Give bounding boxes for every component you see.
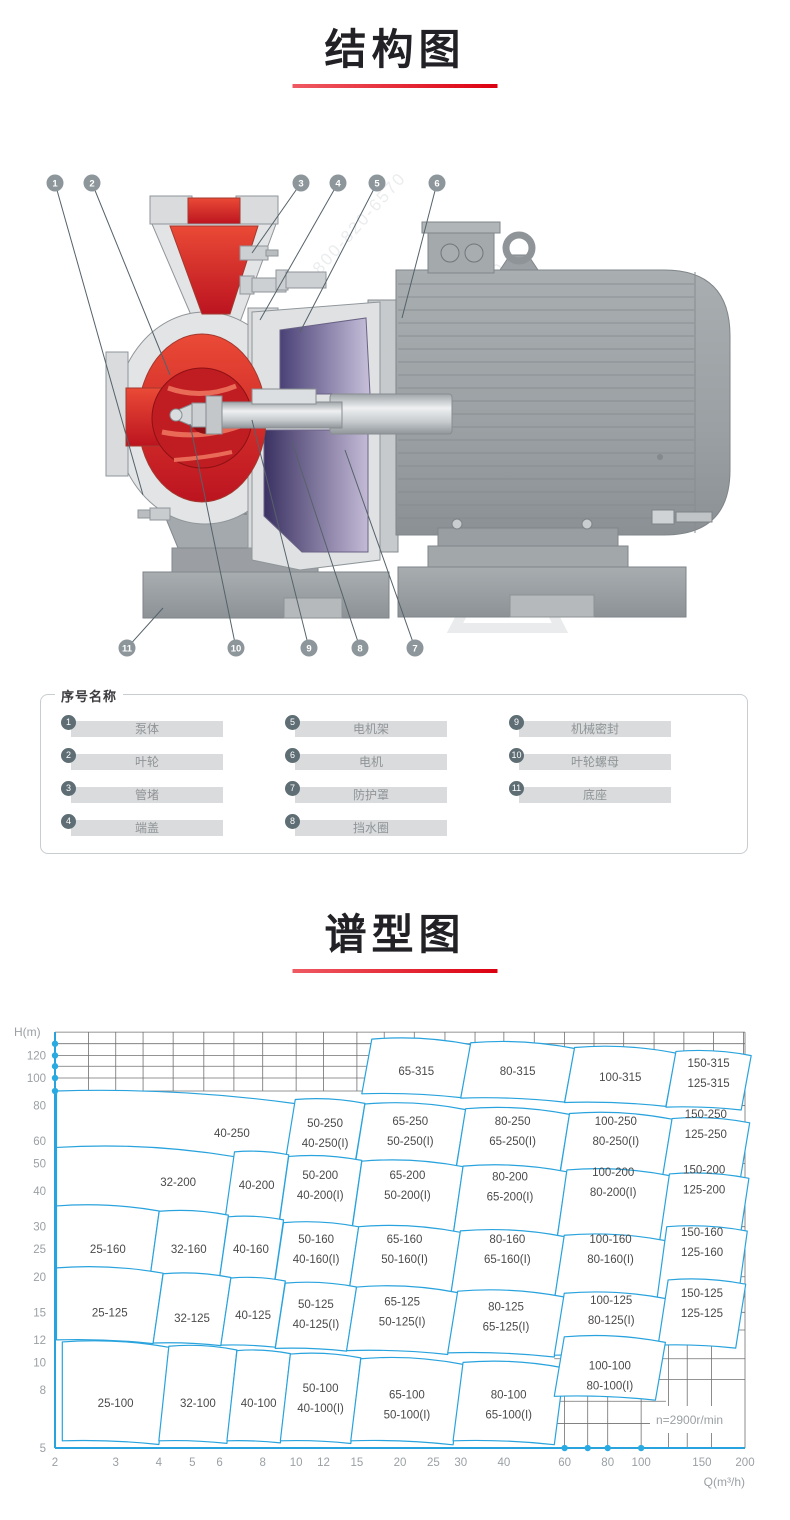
svg-text:80-160(I): 80-160(I) [587,1254,634,1266]
svg-text:80-250(I): 80-250(I) [592,1136,639,1148]
svg-text:40: 40 [497,1457,510,1469]
model-region [159,1345,237,1443]
svg-text:3: 3 [113,1457,119,1469]
shaft [170,389,452,434]
pump-structure-diagram: 800-820-6570800-820-6570800-820-6570800-… [0,160,790,680]
svg-text:50-100(I): 50-100(I) [384,1410,431,1422]
legend-item-number: 7 [285,781,300,796]
legend-item-number: 1 [61,715,76,730]
model-region [557,1169,670,1244]
y-axis-label: H(m) [14,1025,41,1039]
svg-text:200: 200 [735,1457,754,1469]
legend-item: 11底座 [509,781,733,814]
svg-text:65-100: 65-100 [389,1390,425,1402]
legend-item-label: 机械密封 [519,721,671,737]
svg-text:100-125: 100-125 [590,1295,632,1307]
title-underline [293,969,498,973]
svg-text:25: 25 [427,1457,440,1469]
svg-text:65-200: 65-200 [390,1170,426,1182]
legend-item: 1泵体 [61,715,285,748]
svg-text:50-125: 50-125 [298,1299,334,1311]
svg-text:40-250(I): 40-250(I) [302,1138,349,1150]
svg-text:100-250: 100-250 [595,1116,637,1128]
svg-text:40-160: 40-160 [233,1244,269,1256]
svg-text:50-160: 50-160 [298,1234,334,1246]
legend-item: 9机械密封 [509,715,733,748]
pump-selection-chart: 65-31580-315100-315150-315125-31540-2505… [0,1020,790,1520]
svg-text:12: 12 [33,1335,46,1347]
svg-text:50-100: 50-100 [303,1383,339,1395]
legend-item: 7防护罩 [285,781,509,814]
legend-item: 10叶轮螺母 [509,748,733,781]
svg-text:100-315: 100-315 [599,1072,641,1084]
drain-plug [150,508,170,520]
svg-text:65-125: 65-125 [384,1296,420,1308]
svg-text:15: 15 [33,1307,46,1319]
svg-text:8: 8 [40,1385,46,1397]
svg-text:4: 4 [156,1457,163,1469]
svg-text:80: 80 [601,1457,614,1469]
legend-title: 序号名称 [55,686,123,705]
watermark-text: 800-820-6570 [309,168,410,277]
svg-text:65-250(I): 65-250(I) [489,1136,536,1148]
svg-text:120: 120 [27,1050,46,1062]
svg-text:50-250: 50-250 [307,1118,343,1130]
svg-text:60: 60 [558,1457,571,1469]
callout-number: 1 [52,178,58,189]
svg-text:150-125: 150-125 [681,1288,723,1300]
callout-number: 8 [357,643,362,654]
svg-text:65-250: 65-250 [392,1116,428,1128]
svg-text:30: 30 [454,1457,467,1469]
callout-number: 3 [298,178,303,189]
svg-text:150: 150 [692,1457,711,1469]
speed-note: n=2900r/min [656,1413,723,1427]
callout-number: 4 [335,178,341,189]
svg-text:20: 20 [33,1272,46,1284]
svg-text:100: 100 [27,1073,46,1085]
callout-number: 2 [89,178,94,189]
foot-bolt [452,519,462,529]
svg-text:8: 8 [260,1457,266,1469]
svg-text:125-200: 125-200 [683,1184,725,1196]
callout-number: 9 [306,643,311,654]
legend-item: 6电机 [285,748,509,781]
terminal-box-hole [465,244,483,262]
title-underline [293,84,498,88]
legend-item-label: 泵体 [71,721,223,737]
legend-item: 4端盖 [61,814,285,847]
callout-number: 11 [122,643,133,654]
svg-text:40-125(I): 40-125(I) [293,1319,340,1331]
page-title-structure: 结构图 [0,16,790,77]
svg-text:50-200: 50-200 [302,1170,338,1182]
svg-text:100: 100 [632,1457,651,1469]
svg-text:80-100: 80-100 [491,1390,527,1402]
legend-item-label: 叶轮螺母 [519,754,671,770]
impeller-nut [192,403,206,427]
model-region [453,1361,564,1445]
legend-item-label: 管堵 [71,787,223,803]
svg-text:65-100(I): 65-100(I) [485,1410,532,1422]
callout-number: 5 [374,178,380,189]
model-region [56,1267,163,1344]
svg-text:5: 5 [40,1443,46,1455]
svg-text:50: 50 [33,1159,46,1171]
legend-item-number: 5 [285,715,300,730]
svg-text:100-160: 100-160 [589,1234,631,1246]
motor-bracket [252,302,380,570]
svg-text:25-100: 25-100 [98,1398,134,1410]
svg-text:10: 10 [33,1357,46,1369]
model-region [285,1099,365,1164]
svg-text:40-100(I): 40-100(I) [297,1403,344,1415]
model-region [280,1353,360,1443]
svg-text:80-125: 80-125 [488,1302,524,1314]
legend-item-number: 2 [61,748,76,763]
svg-text:32-125: 32-125 [174,1313,210,1325]
svg-text:80-125(I): 80-125(I) [588,1315,635,1327]
svg-text:40-100: 40-100 [241,1398,277,1410]
svg-text:65-315: 65-315 [398,1066,434,1078]
svg-text:25-125: 25-125 [92,1307,128,1319]
svg-text:40: 40 [33,1186,46,1198]
shaft-key [252,389,316,404]
callout-number: 10 [231,643,242,654]
legend-item: 5电机架 [285,715,509,748]
svg-text:50-160(I): 50-160(I) [381,1254,428,1266]
svg-text:32-100: 32-100 [180,1398,216,1410]
svg-text:50-250(I): 50-250(I) [387,1136,434,1148]
svg-text:80-315: 80-315 [500,1066,536,1078]
svg-text:150-200: 150-200 [683,1164,725,1176]
svg-text:40-125: 40-125 [235,1310,271,1322]
svg-text:15: 15 [350,1457,363,1469]
svg-text:100-100: 100-100 [589,1360,631,1372]
suction-flange [106,352,128,476]
svg-text:125-125: 125-125 [681,1308,723,1320]
svg-text:40-250: 40-250 [214,1128,250,1140]
model-region [275,1282,356,1351]
svg-text:80-200: 80-200 [492,1172,528,1184]
svg-text:12: 12 [317,1457,330,1469]
legend-item-label: 端盖 [71,820,223,836]
legend-item: 8挡水圈 [285,814,509,847]
svg-text:10: 10 [290,1457,303,1469]
svg-text:40-160(I): 40-160(I) [293,1254,340,1266]
svg-text:150-160: 150-160 [681,1227,723,1239]
x-axis-label: Q(m³/h) [704,1475,745,1489]
legend-box: 序号名称 1泵体2叶轮3管堵4端盖5电机架6电机7防护罩8挡水圈9机械密封10叶… [40,694,748,854]
legend-item-label: 电机 [295,754,447,770]
svg-text:150-250: 150-250 [685,1109,727,1121]
model-region [227,1350,291,1443]
model-region [62,1341,169,1445]
svg-text:32-200: 32-200 [160,1177,196,1189]
page-root: 结构图 800-820-6570800-82 [0,0,790,1520]
legend-item-number: 10 [509,748,524,763]
legend-item-label: 底座 [519,787,671,803]
svg-text:60: 60 [33,1136,46,1148]
svg-text:2: 2 [52,1457,58,1469]
svg-text:40-200: 40-200 [239,1180,275,1192]
svg-text:125-250: 125-250 [685,1129,727,1141]
svg-text:80: 80 [33,1101,46,1113]
svg-text:65-125(I): 65-125(I) [483,1322,530,1334]
terminal-box-hole [441,244,459,262]
svg-text:50-200(I): 50-200(I) [384,1190,431,1202]
svg-text:25: 25 [33,1244,46,1256]
legend-item-number: 9 [509,715,524,730]
legend-items: 1泵体2叶轮3管堵4端盖5电机架6电机7防护罩8挡水圈9机械密封10叶轮螺母11… [41,695,747,847]
svg-text:125-315: 125-315 [687,1078,729,1090]
svg-text:65-200(I): 65-200(I) [487,1192,534,1204]
legend-item-number: 4 [61,814,76,829]
svg-text:20: 20 [394,1457,407,1469]
legend-item-number: 6 [285,748,300,763]
callout-number: 7 [412,643,417,654]
svg-text:5: 5 [189,1457,195,1469]
svg-text:32-160: 32-160 [171,1244,207,1256]
svg-text:40-200(I): 40-200(I) [297,1190,344,1202]
svg-text:100-200: 100-200 [592,1167,634,1179]
legend-item-label: 叶轮 [71,754,223,770]
model-region [153,1273,231,1346]
foot-bolt [582,519,592,529]
svg-text:50-125(I): 50-125(I) [379,1316,426,1328]
svg-text:150-315: 150-315 [687,1058,729,1070]
svg-text:30: 30 [33,1222,46,1234]
svg-text:80-100(I): 80-100(I) [587,1380,634,1392]
svg-text:65-160(I): 65-160(I) [484,1254,531,1266]
legend-item-number: 8 [285,814,300,829]
legend-item-label: 防护罩 [295,787,447,803]
legend-item-number: 11 [509,781,524,796]
legend-item: 3管堵 [61,781,285,814]
callout-number: 6 [434,178,439,189]
svg-text:80-160: 80-160 [489,1234,525,1246]
legend-item-number: 3 [61,781,76,796]
legend-item-label: 挡水圈 [295,820,447,836]
callout-leader-line [55,183,143,495]
legend-item: 2叶轮 [61,748,285,781]
page-title-chart: 谱型图 [0,901,790,962]
svg-text:6: 6 [216,1457,222,1469]
svg-text:80-250: 80-250 [495,1116,531,1128]
svg-text:65-160: 65-160 [387,1234,423,1246]
svg-text:125-160: 125-160 [681,1247,723,1259]
legend-item-label: 电机架 [295,721,447,737]
svg-text:80-200(I): 80-200(I) [590,1187,637,1199]
svg-text:25-160: 25-160 [90,1244,126,1256]
